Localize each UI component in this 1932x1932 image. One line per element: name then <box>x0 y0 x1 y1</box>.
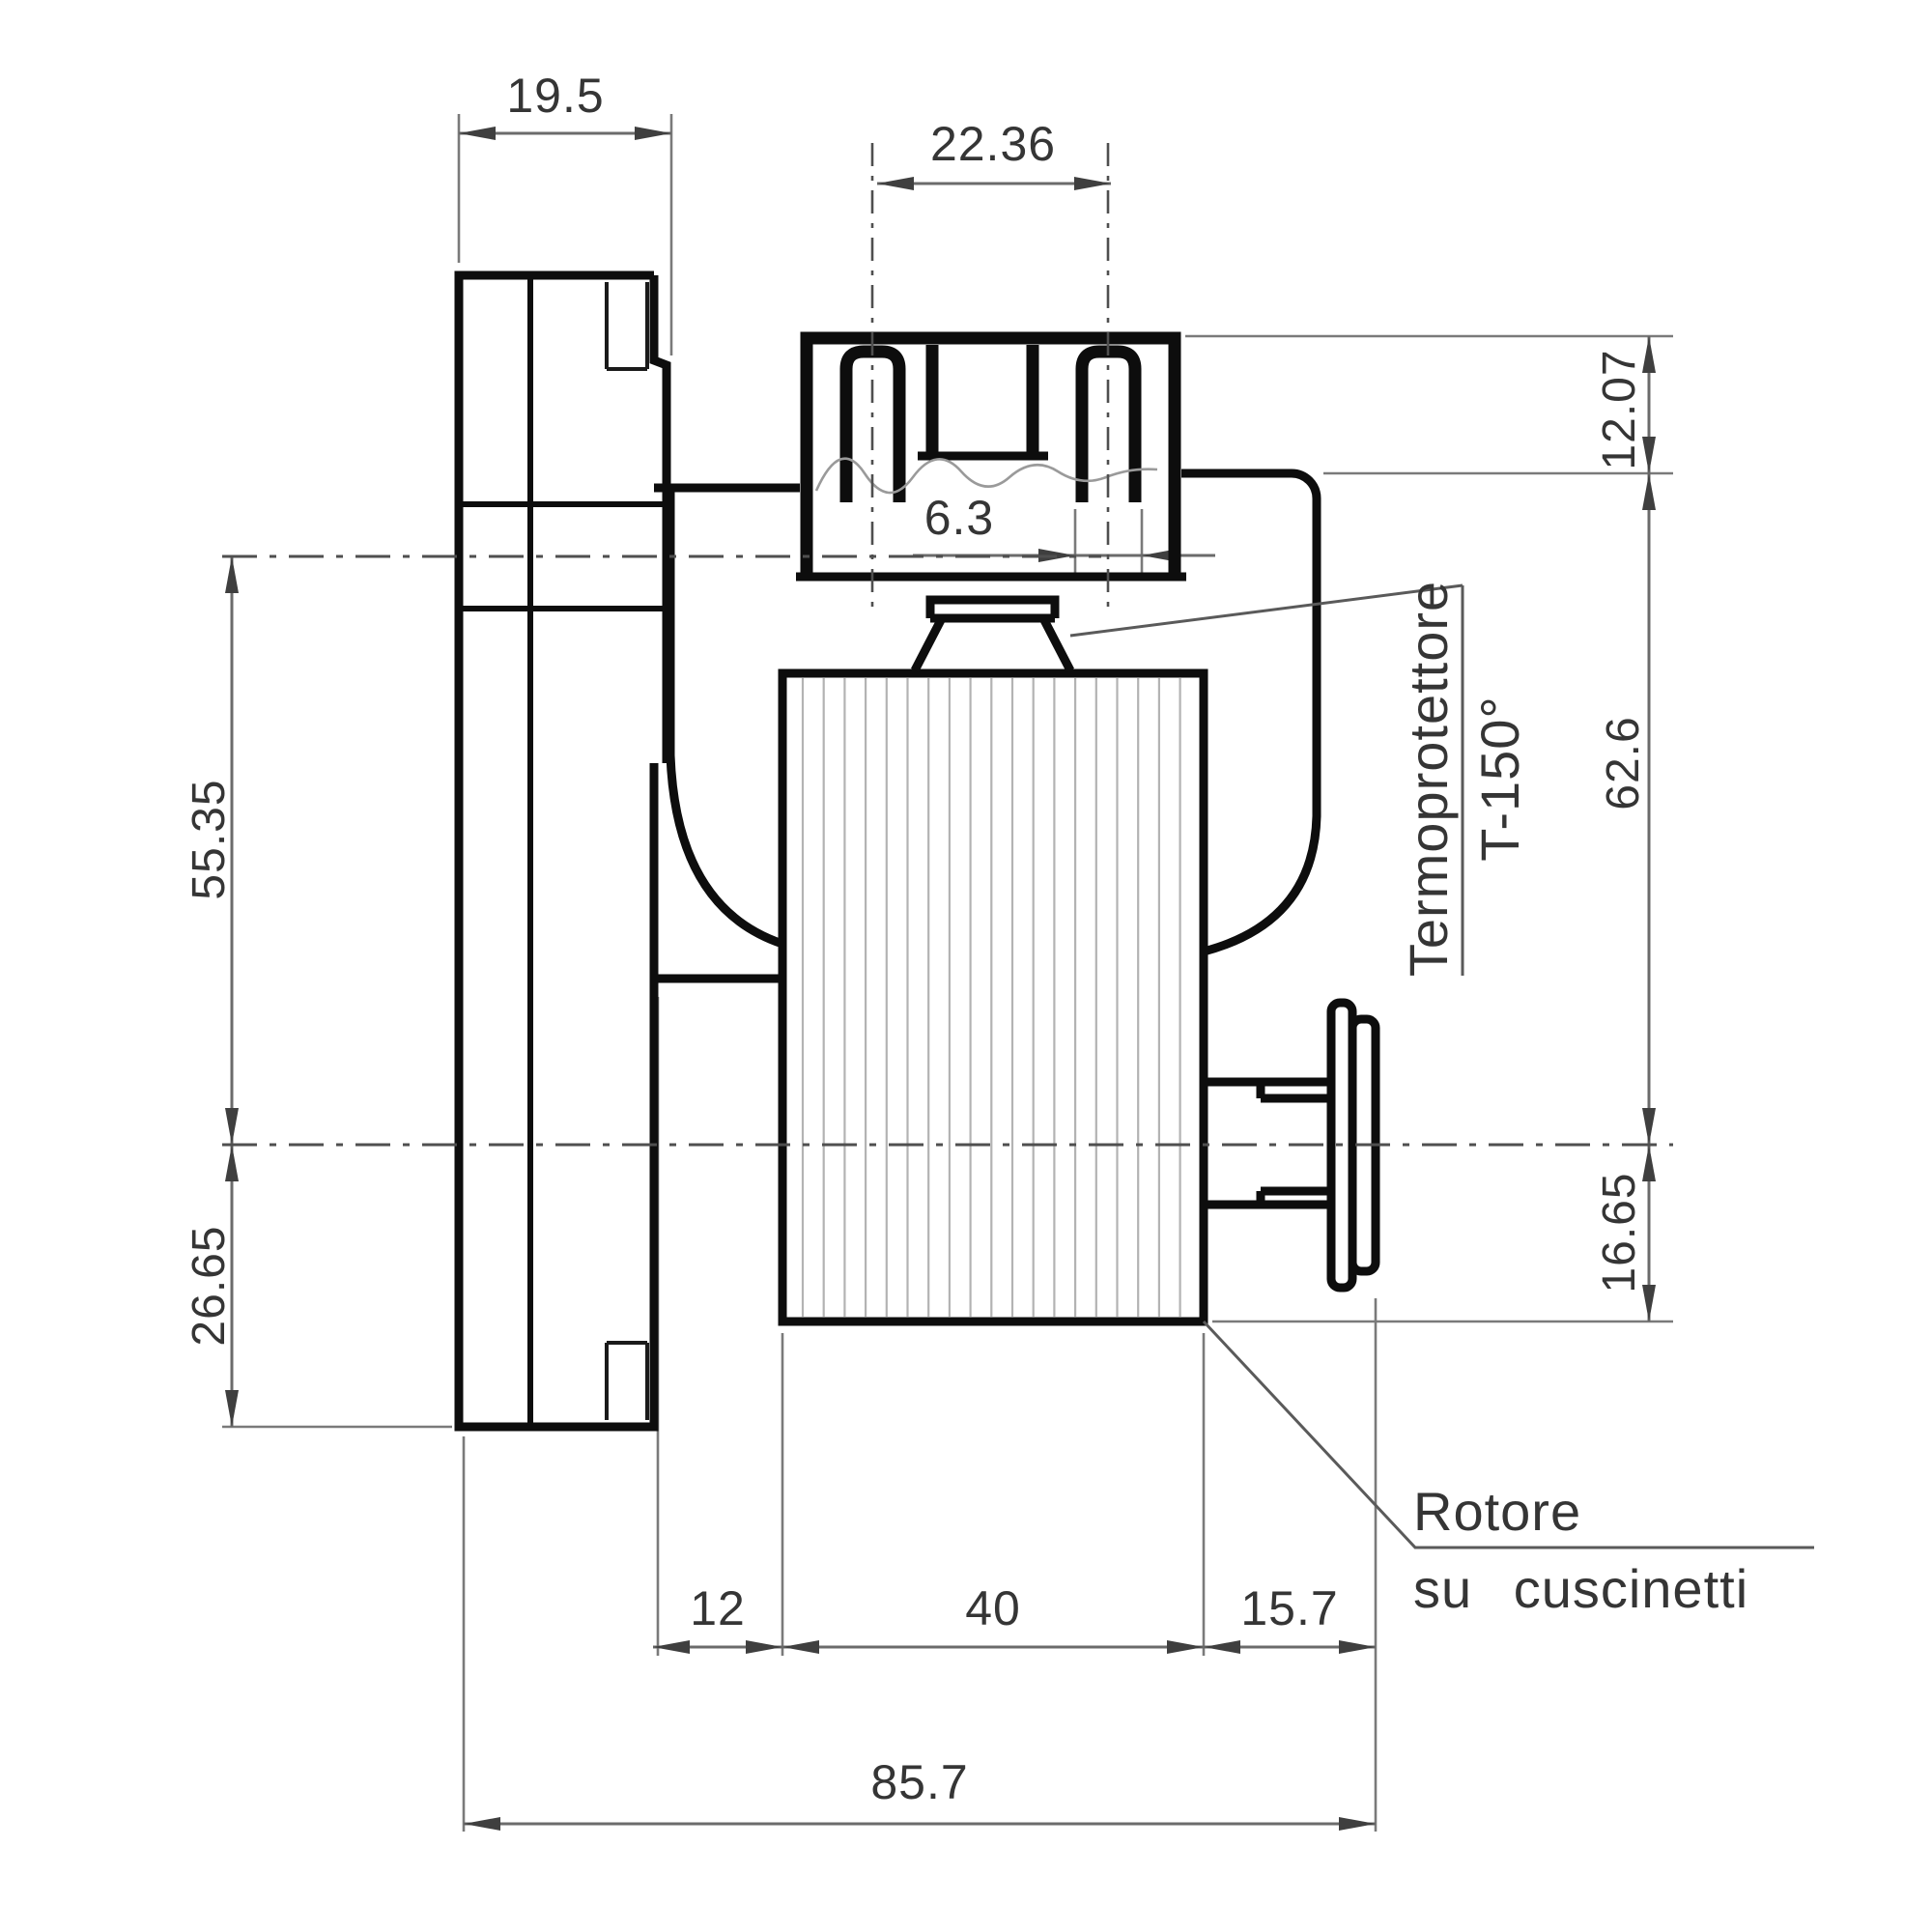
thermal-protector-label-line1: Termoprotettore <box>1398 581 1459 977</box>
dim-connector-top-offset: 12.07 <box>1594 349 1645 469</box>
gear-housing <box>654 473 1317 979</box>
dim-stator-length: 40 <box>965 1581 1021 1635</box>
dim-gearbox-depth: 12 <box>690 1581 746 1635</box>
flange-outline <box>459 275 667 1427</box>
part-geometry <box>459 275 1376 1427</box>
dim-output-center-to-axis: 55.35 <box>184 779 235 899</box>
dim-flange-width: 19.5 <box>506 69 604 123</box>
annotation-texts: Termoprotettore T-150° Rotore su cuscine… <box>1398 581 1748 1619</box>
dim-terminal-pitch: 22.36 <box>930 117 1056 171</box>
stator-hatching <box>803 678 1180 1317</box>
dim-terminal-width: 6.3 <box>924 491 995 545</box>
gearmotor-drawing: 19.5 22.36 6.3 12.07 62.6 16.65 55.35 26… <box>0 0 1932 1932</box>
dim-axis-to-flange-bottom: 26.65 <box>184 1225 235 1346</box>
rotor-note-line1: Rotore <box>1413 1481 1581 1542</box>
flange-bottom-notch <box>607 1343 647 1420</box>
flange-top-notch <box>607 282 647 369</box>
thermal-protector-label-line2: T-150° <box>1469 696 1530 862</box>
connector-cavity-walls <box>932 345 1033 452</box>
mounting-flange <box>459 275 667 1427</box>
break-line <box>816 459 1157 493</box>
thermal-protector <box>915 600 1070 670</box>
dim-overall-length: 85.7 <box>870 1755 968 1809</box>
thermal-protector-outline <box>915 600 1070 670</box>
technical-drawing-page: 19.5 22.36 6.3 12.07 62.6 16.65 55.35 26… <box>0 0 1932 1932</box>
dim-axis-to-stator-bottom: 16.65 <box>1594 1172 1645 1293</box>
stator-block <box>782 673 1204 1321</box>
rotor-note-line2: su cuscinetti <box>1413 1558 1748 1619</box>
dim-shaft-end-length: 15.7 <box>1240 1581 1338 1635</box>
dim-body-top-to-axis: 62.6 <box>1598 716 1649 810</box>
